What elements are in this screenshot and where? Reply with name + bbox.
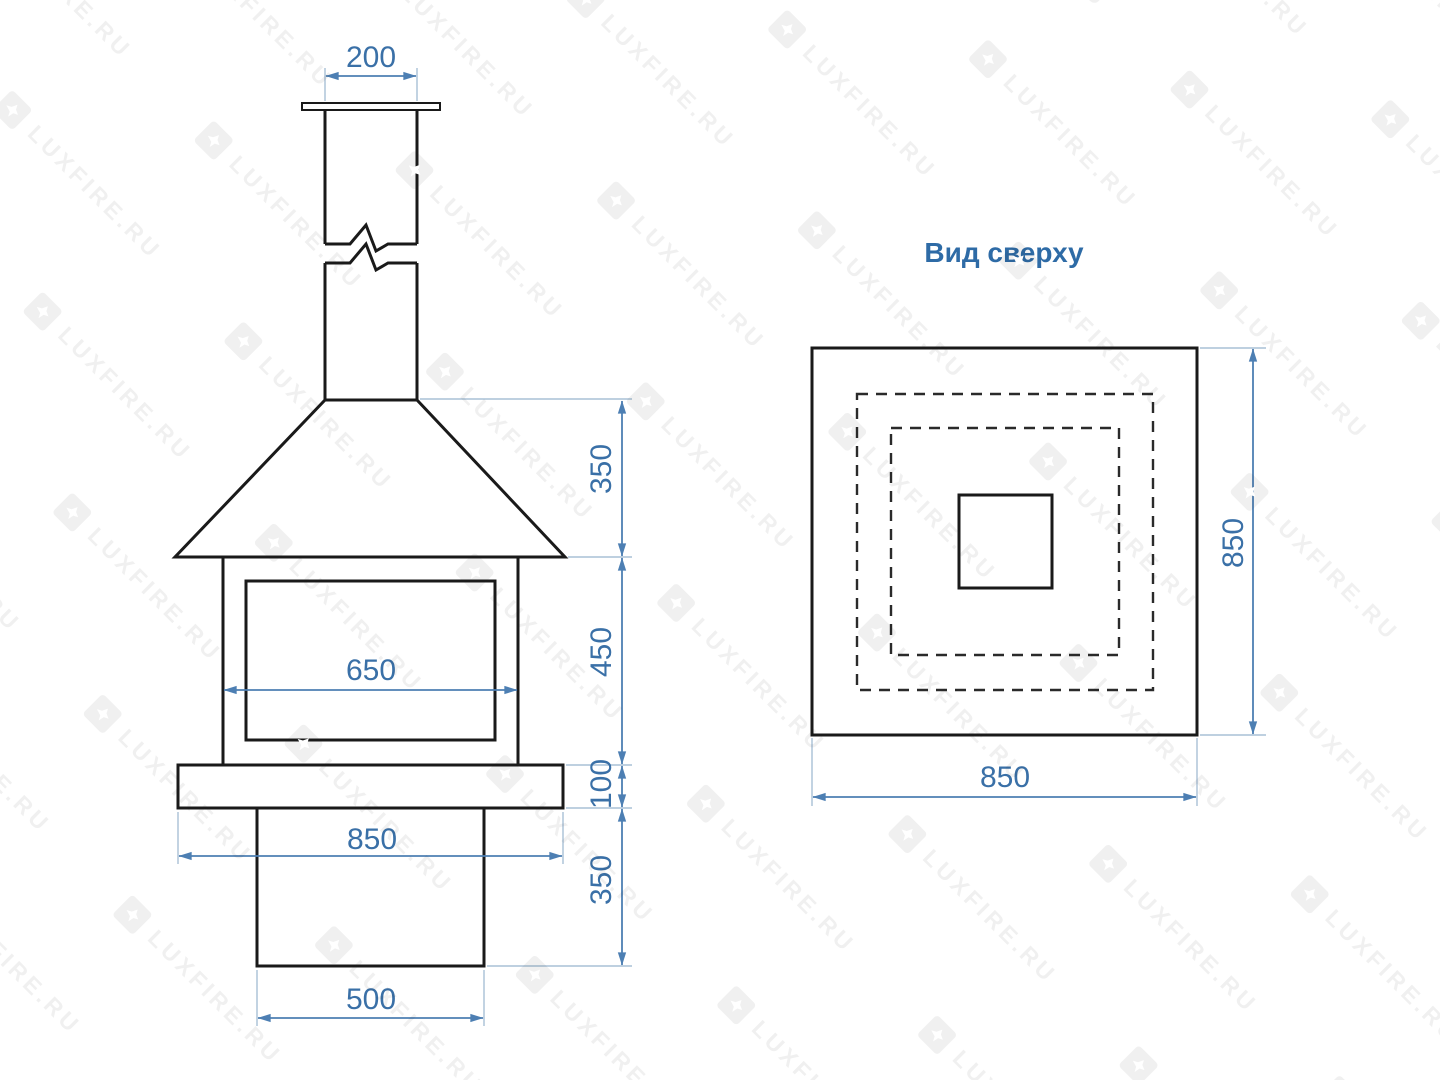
- dim-label-firebox-height: 450: [587, 627, 617, 677]
- dim-label-topview-width: 850: [980, 763, 1030, 793]
- chimney-cap-plate: [302, 103, 440, 110]
- pipe-break-upper-edge: [325, 225, 417, 251]
- chimney-pipe-upper: [325, 110, 417, 244]
- dim-label-hood-height: 350: [587, 444, 617, 494]
- chimney-pipe-lower: [325, 263, 417, 400]
- dim-label-slab-width: 850: [347, 825, 397, 855]
- fireplace-blueprint: 200 350 650 450 100 850 350 500 Вид свер…: [0, 0, 1440, 1080]
- dim-label-chimney-width: 200: [346, 43, 396, 73]
- dim-label-pedestal-height: 350: [587, 855, 617, 905]
- top-view: [812, 348, 1197, 735]
- pipe-break-lower-edge: [325, 244, 417, 270]
- dim-label-pedestal-width: 500: [346, 985, 396, 1015]
- dim-label-firebox-width: 650: [346, 656, 396, 686]
- dim-label-slab-thickness: 100: [587, 759, 617, 809]
- topview-flue-square: [959, 495, 1052, 588]
- hood-outline: [175, 400, 565, 557]
- base-slab: [178, 765, 563, 808]
- dim-label-topview-height: 850: [1219, 518, 1249, 568]
- top-view-title: Вид сверху: [924, 239, 1083, 267]
